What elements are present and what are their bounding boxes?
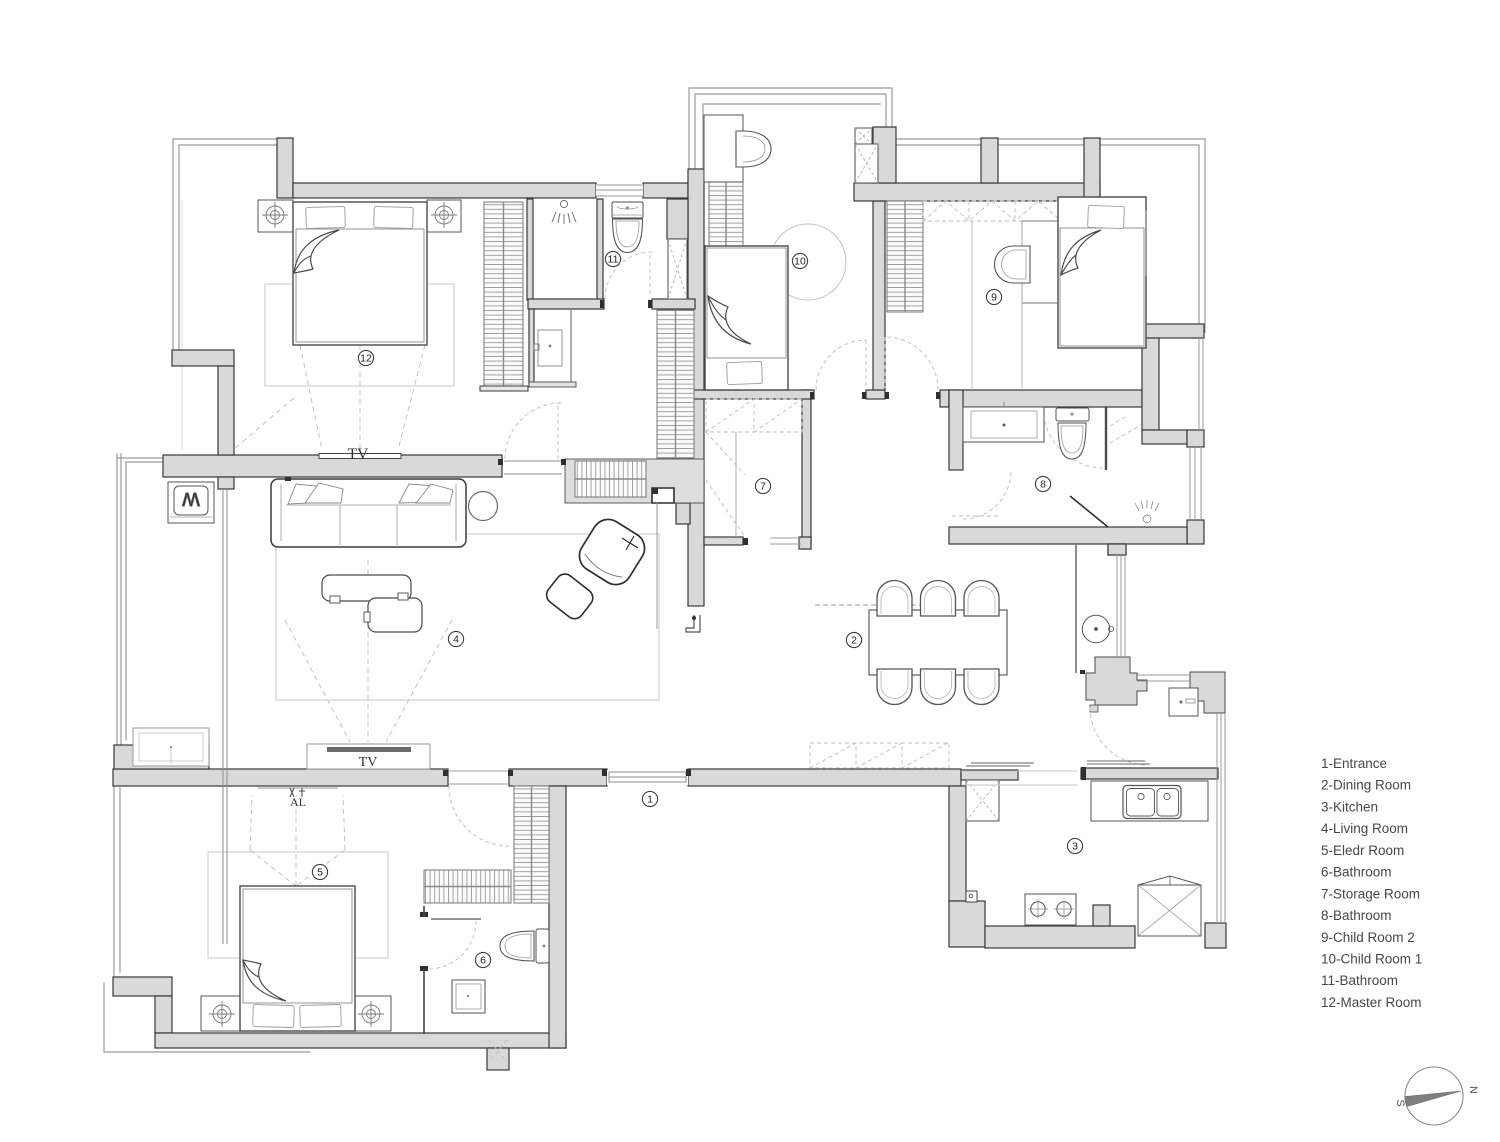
svg-text:2: 2 xyxy=(851,635,857,647)
svg-text:AL: AL xyxy=(290,795,306,809)
svg-text:S: S xyxy=(1394,1099,1406,1106)
svg-text:1: 1 xyxy=(647,794,653,806)
svg-text:11: 11 xyxy=(608,254,619,266)
svg-text:7: 7 xyxy=(760,481,766,493)
svg-text:10-Child Room 1: 10-Child Room 1 xyxy=(1321,952,1422,967)
svg-text:12: 12 xyxy=(360,353,372,365)
svg-text:8-Bathroom: 8-Bathroom xyxy=(1321,908,1392,923)
svg-text:N: N xyxy=(1467,1086,1479,1094)
svg-text:3: 3 xyxy=(1072,841,1078,853)
svg-text:8: 8 xyxy=(1040,479,1046,491)
svg-text:1-Entrance: 1-Entrance xyxy=(1321,756,1387,771)
svg-text:3-Kitchen: 3-Kitchen xyxy=(1321,799,1378,814)
svg-text:9-Child Room 2: 9-Child Room 2 xyxy=(1321,930,1415,945)
svg-text:4-Living Room: 4-Living Room xyxy=(1321,821,1408,836)
svg-text:5: 5 xyxy=(317,867,323,879)
svg-text:5-Eledr Room: 5-Eledr Room xyxy=(1321,843,1404,858)
svg-text:9: 9 xyxy=(991,292,997,304)
svg-text:W: W xyxy=(182,489,200,510)
svg-text:6: 6 xyxy=(480,955,486,967)
svg-text:4: 4 xyxy=(453,634,459,646)
svg-text:7-Storage Room: 7-Storage Room xyxy=(1321,886,1420,901)
svg-text:12-Master Room: 12-Master Room xyxy=(1321,995,1422,1010)
svg-text:2-Dining Room: 2-Dining Room xyxy=(1321,778,1411,793)
svg-text:11-Bathroom: 11-Bathroom xyxy=(1321,973,1398,988)
svg-text:10: 10 xyxy=(794,256,806,268)
svg-text:TV: TV xyxy=(348,446,369,463)
svg-text:6-Bathroom: 6-Bathroom xyxy=(1321,865,1392,880)
svg-text:TV: TV xyxy=(359,755,378,770)
